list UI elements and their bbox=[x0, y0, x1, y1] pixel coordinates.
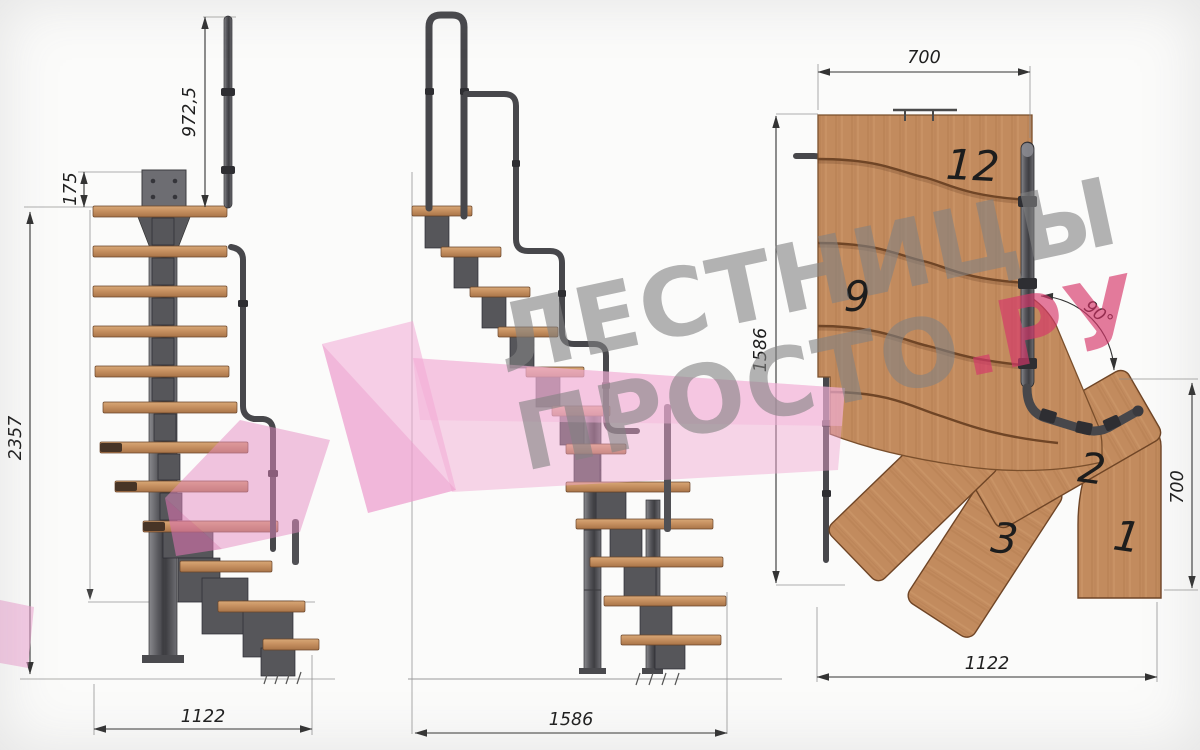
dim-turn-angle: 90° bbox=[1080, 297, 1117, 332]
dim-plan-depth: 1586 bbox=[751, 328, 771, 373]
side-dimensions: 1586 bbox=[415, 710, 727, 733]
staircase-drawing: 972,5 175 2357 1122 bbox=[0, 0, 1200, 750]
plan-label-3: 3 bbox=[989, 513, 1021, 565]
dim-plan-right-depth: 700 bbox=[1168, 470, 1188, 503]
plan-label-12: 12 bbox=[945, 140, 1001, 192]
wall-plate bbox=[142, 170, 186, 208]
dim-side-width: 1586 bbox=[549, 710, 594, 730]
dim-front-width: 1122 bbox=[181, 707, 226, 727]
dim-total-height: 2357 bbox=[6, 416, 26, 461]
drawing-sheet: 972,5 175 2357 1122 bbox=[0, 0, 1200, 750]
dim-plan-top-width: 700 bbox=[907, 48, 940, 68]
plan-label-9: 9 bbox=[844, 272, 871, 321]
dim-plate-height: 175 bbox=[61, 172, 81, 205]
side-elevation-view: 1586 bbox=[408, 15, 831, 734]
dim-rail-height: 972,5 bbox=[180, 87, 200, 137]
plan-view: 12 9 3 2 1 700 bbox=[751, 48, 1198, 682]
front-elevation-view: 972,5 175 2357 1122 bbox=[6, 16, 335, 735]
dim-plan-bottom-width: 1122 bbox=[965, 654, 1010, 674]
